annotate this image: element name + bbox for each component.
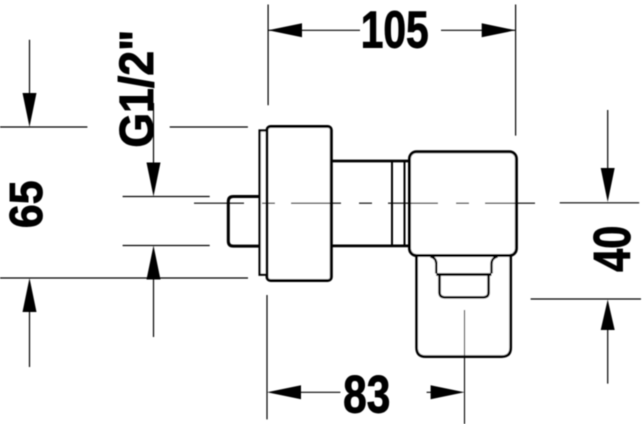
svg-text:105: 105: [361, 1, 429, 59]
svg-text:65: 65: [2, 181, 53, 229]
svg-text:G1/2": G1/2": [109, 30, 163, 148]
svg-text:83: 83: [343, 366, 390, 424]
svg-text:40: 40: [583, 226, 642, 272]
